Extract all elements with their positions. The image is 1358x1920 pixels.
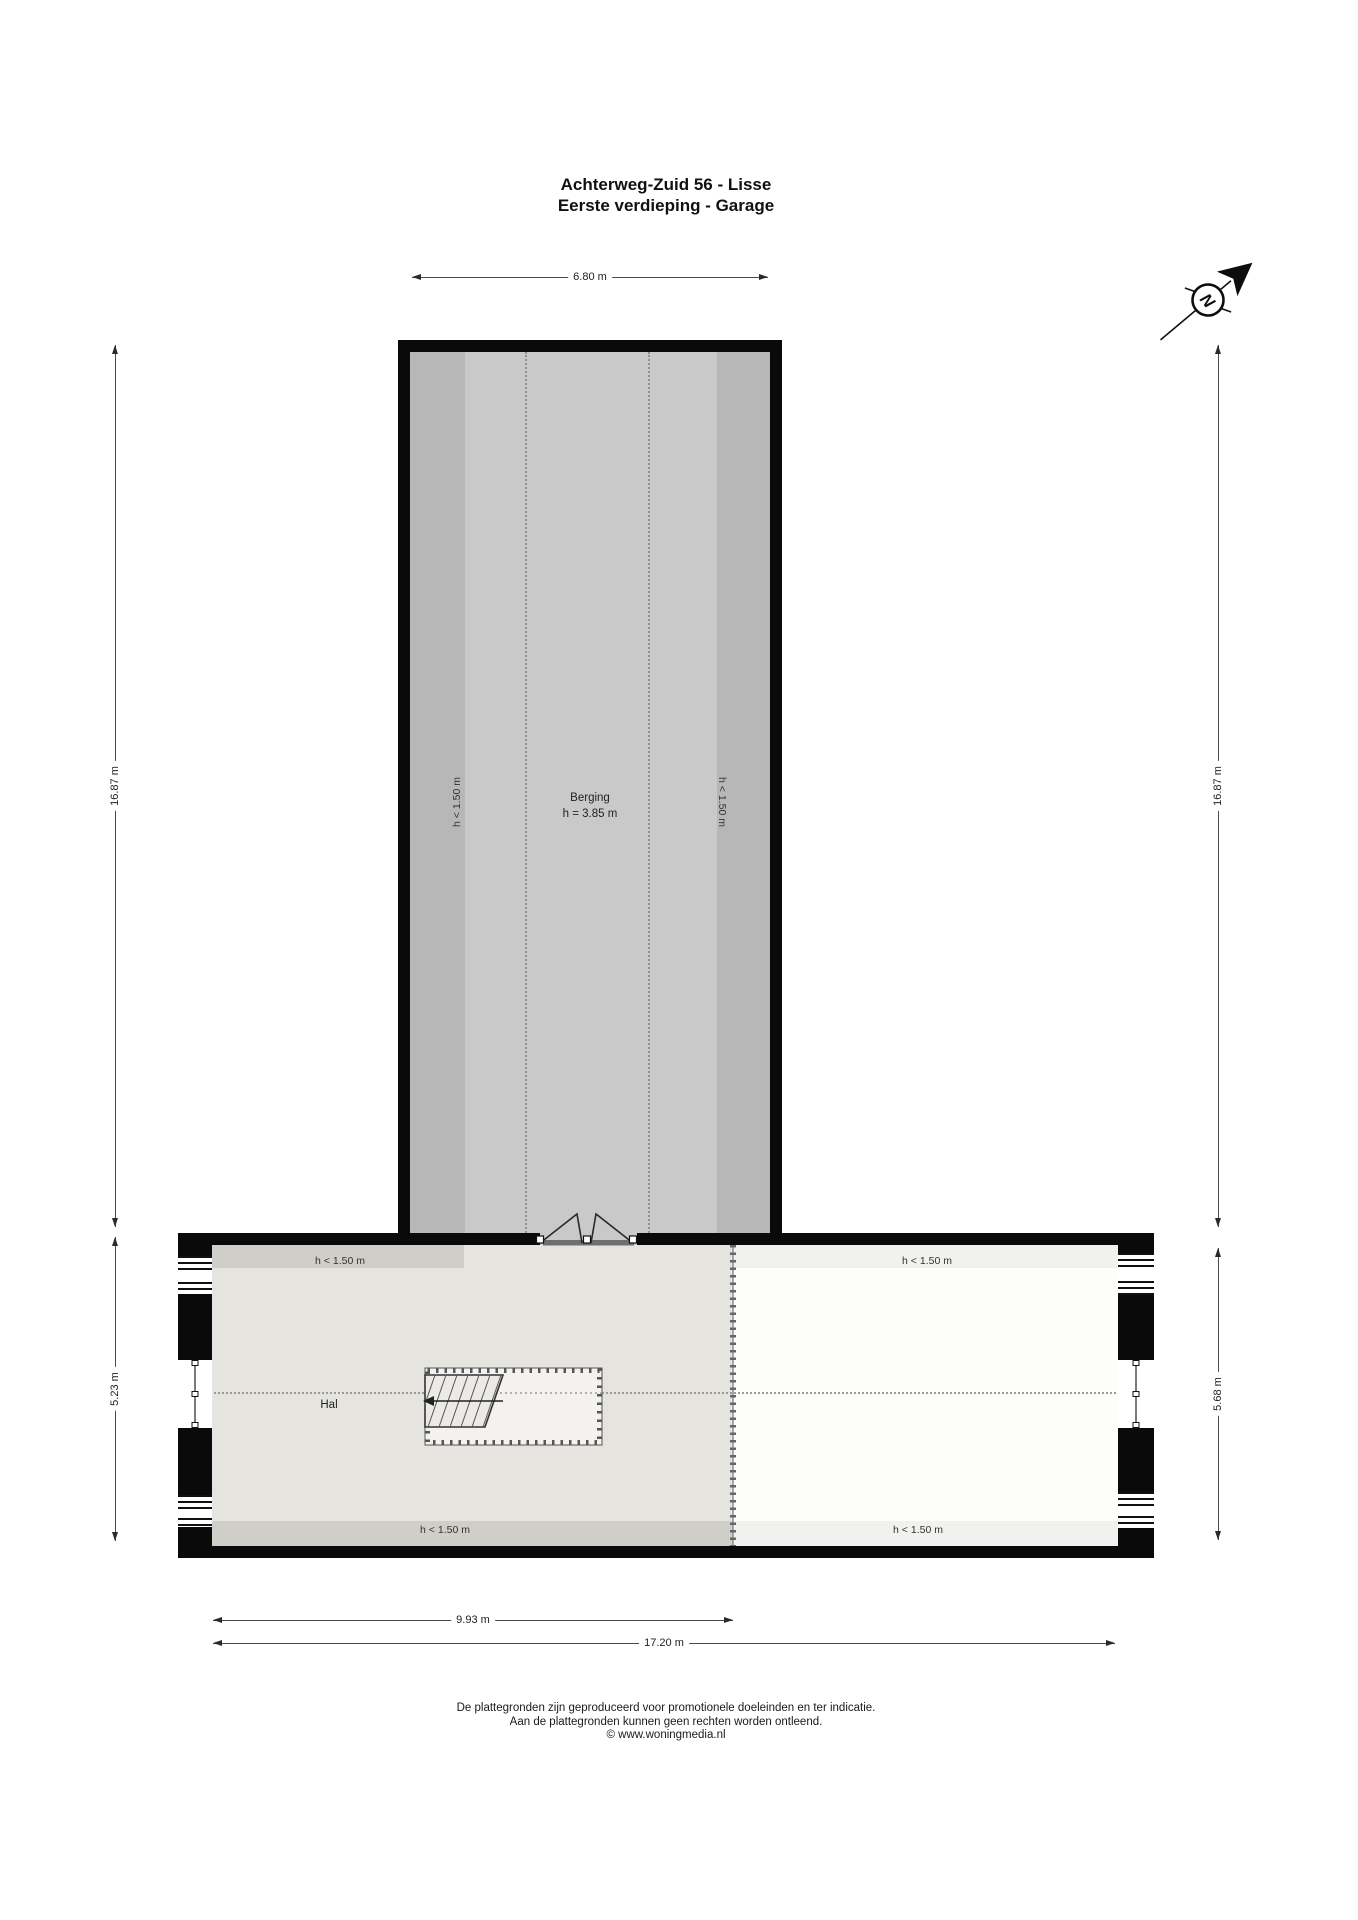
berging-room-name: Berging (563, 790, 618, 806)
dimension-right-section-height: 5.68 m (1218, 1248, 1219, 1540)
berging-low-height-label-left: h < 1.50 m (451, 777, 463, 827)
section-wall-north-left (178, 1233, 540, 1245)
right-room-low-height-label-bottom: h < 1.50 m (893, 1524, 943, 1536)
berging-room-height: h = 3.85 m (563, 806, 618, 822)
section-wall-north-right (637, 1233, 1154, 1245)
right-room-area (733, 1245, 1118, 1546)
dimension-berging-width: 6.80 m (412, 277, 768, 278)
disclaimer: De plattegronden zijn geproduceerd voor … (366, 1702, 966, 1743)
window-panel-west (178, 1360, 212, 1428)
copyright: © www.woningmedia.nl (366, 1729, 966, 1743)
window-post (192, 1422, 199, 1428)
title-address: Achterweg-Zuid 56 - Lisse (366, 174, 966, 195)
window-panel-east (1118, 1360, 1154, 1428)
hal-low-height-label-bottom: h < 1.50 m (420, 1524, 470, 1536)
right-room-low-height-label-top: h < 1.50 m (902, 1255, 952, 1267)
hal-room-name: Hal (320, 1397, 337, 1413)
title-floor: Eerste verdieping - Garage (366, 195, 966, 216)
berging-height-contour-right (648, 352, 650, 1245)
dimension-hal-width: 9.93 m (213, 1620, 733, 1621)
window-gap (1118, 1271, 1154, 1281)
berging-wall-west (398, 340, 410, 1245)
double-door-icon (533, 1205, 647, 1249)
window-icon (1118, 1281, 1154, 1295)
disclaimer-line-2: Aan de plattegronden kunnen geen rechten… (366, 1716, 966, 1730)
window-icon (1118, 1516, 1154, 1528)
berging-height-contour-left (525, 352, 527, 1245)
window-icon (178, 1282, 212, 1294)
window-gap (178, 1510, 212, 1518)
berging-wall-north (398, 340, 782, 352)
window-icon (178, 1256, 212, 1272)
section-wall-west (178, 1233, 212, 1558)
section-wall-east (1118, 1233, 1154, 1558)
window-post (192, 1360, 199, 1366)
window-icon (1118, 1492, 1154, 1508)
section-wall-south (178, 1546, 1154, 1558)
section-height-contour-line (214, 1392, 1116, 1394)
window-icon (178, 1495, 212, 1510)
dimension-right-total-height: 16.87 m (1218, 345, 1219, 1227)
compass-north-icon: N (1148, 246, 1270, 358)
floorplan-page: Achterweg-Zuid 56 - Lisse Eerste verdiep… (0, 0, 1358, 1920)
berging-room-label: Berging h = 3.85 m (563, 790, 618, 822)
window-icon (1118, 1253, 1154, 1271)
window-post (192, 1391, 199, 1397)
hal-low-height-label-top: h < 1.50 m (315, 1255, 365, 1267)
disclaimer-line-1: De plattegronden zijn geproduceerd voor … (366, 1702, 966, 1716)
page-title: Achterweg-Zuid 56 - Lisse Eerste verdiep… (366, 174, 966, 216)
dimension-hal-section-height: 5.23 m (115, 1237, 116, 1541)
window-gap (1118, 1508, 1154, 1516)
window-post (1133, 1360, 1140, 1366)
window-icon (178, 1518, 212, 1527)
dimension-total-width: 17.20 m (213, 1643, 1115, 1644)
stairwell (418, 1358, 612, 1455)
hal-low-height-zone-bottom (212, 1521, 733, 1546)
window-post (1133, 1391, 1140, 1397)
berging-low-height-label-right: h < 1.50 m (716, 777, 728, 827)
berging-wall-east (770, 340, 782, 1245)
room-divider-line (727, 1245, 739, 1546)
window-gap (178, 1272, 212, 1282)
dimension-left-total-height: 16.87 m (115, 345, 116, 1227)
window-post (1133, 1422, 1140, 1428)
